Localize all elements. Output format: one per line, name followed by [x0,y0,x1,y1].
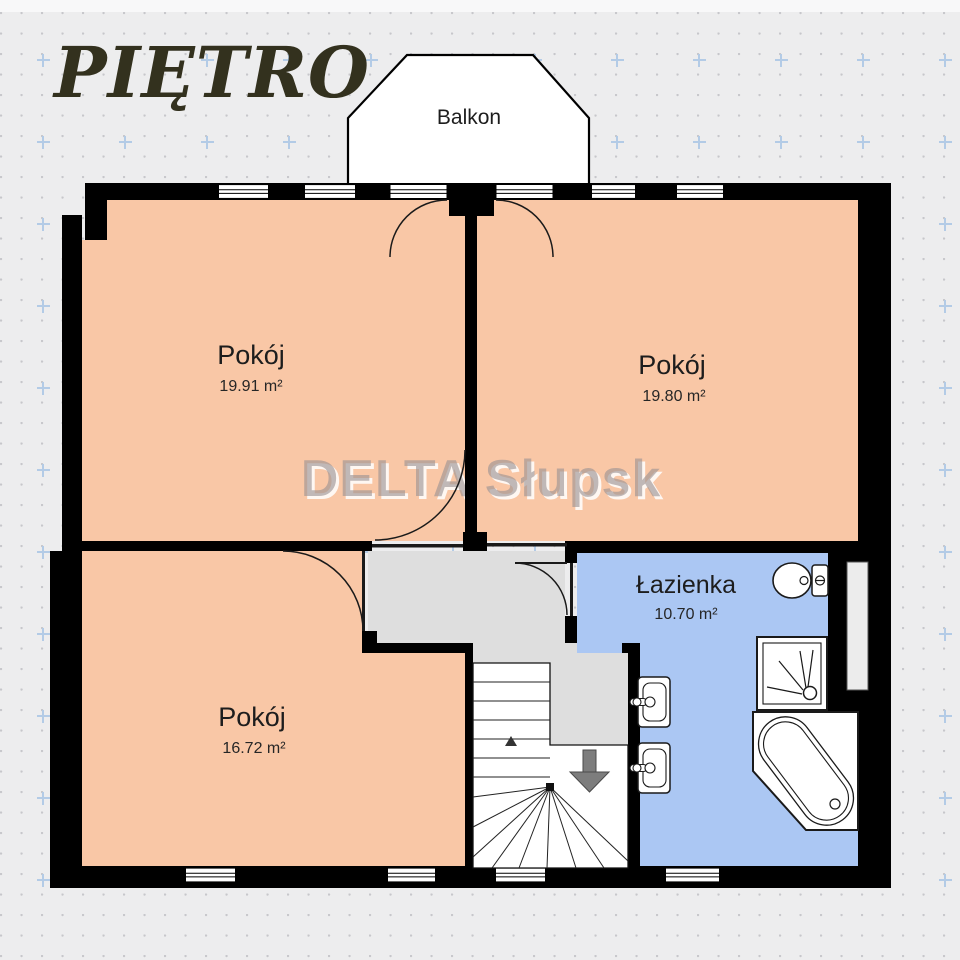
window [585,185,642,199]
room-top-left-name: Pokój [217,340,285,370]
room-bottom-left-area: 16.72 m² [222,740,286,757]
room-bottom-left-name: Pokój [218,702,286,732]
room-top-right-area: 19.80 m² [642,388,706,405]
balcony-label: Balkon [437,106,501,129]
window [670,185,730,199]
door-threshold [487,543,567,547]
door-threshold [372,544,463,548]
window [658,868,727,882]
bathroom-name: Łazienka [636,571,736,599]
window [178,868,243,882]
room-top-left-area: 19.91 m² [219,378,283,395]
watermark: DELTA Słupsk [301,450,662,508]
window [380,868,443,882]
stairs-pivot [546,783,554,791]
floor-plan-page: PIĘTRO DELTA Słupsk DELTA Słupsk [0,0,960,960]
room-top-right-name: Pokój [638,350,706,380]
bathroom-area: 10.70 m² [654,606,718,623]
door-threshold [570,563,573,616]
window [488,868,553,882]
floor-plan-drawing: DELTA Słupsk DELTA Słupsk [0,0,960,960]
shower-icon [757,637,827,710]
window [212,185,275,199]
toilet-icon [773,563,828,598]
window [298,185,362,199]
wall-recess [847,562,868,690]
